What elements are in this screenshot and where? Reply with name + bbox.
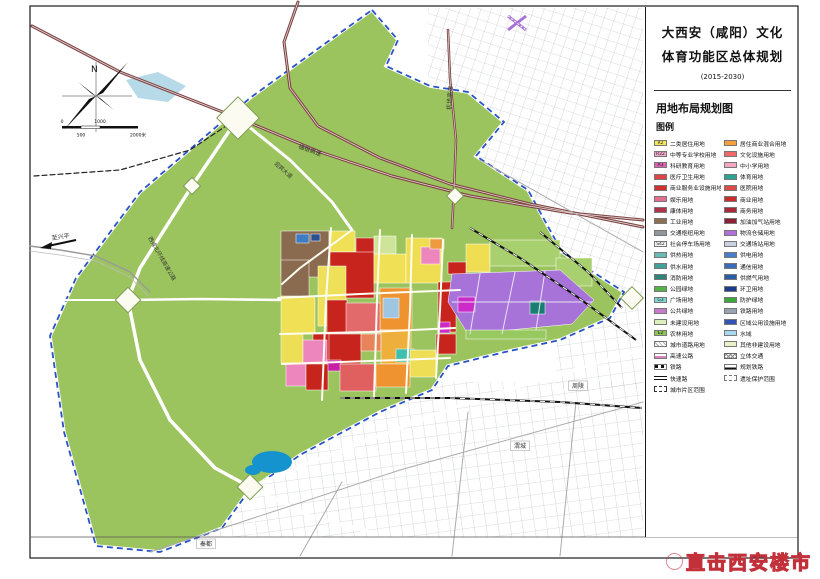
legend-label: 二类居住用地 [670, 139, 705, 148]
legend-label: 立体交通 [740, 351, 763, 360]
legend-label: 环卫用地 [740, 284, 763, 293]
legend-column-right: 居住商业混合用地文化设施用地中小学用地体育用地医院用地商业用地商务用地加油加气站… [724, 138, 791, 395]
legend-label: 供电用地 [740, 250, 763, 259]
legend-row: 文化设施用地 [724, 149, 791, 160]
legend-label: 高速公路 [670, 351, 693, 360]
legend-row: E2农林用地 [654, 328, 721, 339]
legend-row: G3广场用地 [654, 294, 721, 305]
legend-row: 中小学用地 [724, 160, 791, 171]
legend-swatch [654, 364, 667, 370]
legend-row: 快速路 [654, 372, 721, 383]
legend-label: 供水用地 [670, 262, 693, 271]
legend-swatch [654, 319, 667, 325]
legend-label: 商业服务业设施用地 [670, 183, 721, 192]
legend-row: 未建设用地 [654, 317, 721, 328]
legend-row: 加油加气站用地 [724, 216, 791, 227]
legend-row: R2二类居住用地 [654, 138, 721, 149]
legend-label: 供燃气用地 [740, 273, 769, 282]
plan-title-line1: 大西安（咸阳）文化 [654, 21, 791, 45]
legend-row: 工业用地 [654, 216, 721, 227]
direction-arrow-icon [40, 240, 76, 249]
legend-swatch [654, 174, 667, 180]
legend-label: 交通场站用地 [740, 239, 775, 248]
legend-row: 城市片区范围 [654, 384, 721, 395]
legend-swatch [724, 297, 737, 303]
legend-swatch [724, 319, 737, 325]
legend-row: S42社会停车场用地 [654, 238, 721, 249]
legend-swatch [654, 263, 667, 269]
scale-tick-1000: 1000 [94, 119, 106, 125]
legend-swatch [724, 140, 737, 146]
legend-swatch [724, 364, 737, 370]
legend-row: 供燃气用地 [724, 272, 791, 283]
legend-label: 消防用地 [670, 273, 693, 282]
legend-label: 城市片区范围 [670, 385, 705, 394]
legend-label: 铁路用地 [740, 306, 763, 315]
legend-row: 通信用地 [724, 261, 791, 272]
legend-column-left: R2二类居住用地R22中等专业学校用地A3科研教育用地医疗卫生用地商业服务业设施… [654, 138, 721, 395]
legend-swatch: R22 [654, 151, 667, 157]
legend-row: 娱乐用地 [654, 193, 721, 204]
map-sheet-name: 用地布局规划图 [656, 100, 791, 116]
svg-text:秦都: 秦都 [200, 540, 212, 548]
legend-label: 康体用地 [670, 206, 693, 215]
watermark: 直击西安楼市 [666, 548, 812, 575]
legend-label: 农林用地 [670, 329, 693, 338]
legend-row: 城市道路用地 [654, 339, 721, 350]
legend-row: 消防用地 [654, 272, 721, 283]
legend-swatch [724, 252, 737, 258]
legend-row: 环卫用地 [724, 283, 791, 294]
legend-label: 商务用地 [740, 206, 763, 215]
plan-period: (2015-2030) [654, 73, 791, 91]
legend-label: 未建设用地 [670, 318, 699, 327]
legend: R2二类居住用地R22中等专业学校用地A3科研教育用地医疗卫生用地商业服务业设施… [654, 138, 791, 395]
legend-swatch [654, 230, 667, 236]
legend-swatch [724, 162, 737, 168]
legend-swatch [724, 230, 737, 236]
legend-row: 遗址保护范围 [724, 372, 791, 383]
legend-swatch [724, 341, 737, 347]
legend-title: 图例 [656, 120, 791, 133]
legend-swatch [724, 207, 737, 213]
legend-label: 工业用地 [670, 217, 693, 226]
legend-swatch: G3 [654, 297, 667, 303]
legend-swatch: S42 [654, 241, 667, 247]
legend-swatch [724, 330, 737, 336]
legend-swatch: A3 [654, 162, 667, 168]
legend-label: 交通枢纽用地 [670, 228, 705, 237]
legend-row: 供热用地 [654, 249, 721, 260]
legend-row: 医院用地 [724, 182, 791, 193]
legend-label: 医疗卫生用地 [670, 172, 705, 181]
legend-swatch [654, 274, 667, 280]
legend-swatch [654, 386, 667, 392]
legend-row: 立体交通 [724, 350, 791, 361]
legend-label: 城市道路用地 [670, 340, 705, 349]
legend-label: 区域公用设施用地 [740, 318, 786, 327]
watermark-logo-icon [666, 553, 683, 570]
legend-row: 体育用地 [724, 171, 791, 182]
legend-row: 商务用地 [724, 205, 791, 216]
legend-row: 康体用地 [654, 205, 721, 216]
legend-swatch [654, 185, 667, 191]
legend-row: 防护绿地 [724, 294, 791, 305]
scale-tick-500: 500 [77, 133, 86, 139]
legend-row: 交通枢纽用地 [654, 227, 721, 238]
legend-row: 铁路 [654, 361, 721, 372]
legend-swatch [724, 263, 737, 269]
legend-swatch [654, 341, 667, 347]
legend-row: 居住商业混合用地 [724, 138, 791, 149]
legend-swatch [724, 286, 737, 292]
legend-swatch [724, 241, 737, 247]
legend-label: 物流仓储用地 [740, 228, 775, 237]
legend-label: 铁路 [670, 362, 682, 371]
legend-swatch [654, 218, 667, 224]
legend-swatch [654, 196, 667, 202]
svg-text:渭城: 渭城 [514, 442, 526, 450]
legend-swatch [724, 218, 737, 224]
legend-swatch [654, 286, 667, 292]
plan-title: 大西安（咸阳）文化 体育功能区总体规划 [654, 21, 791, 69]
legend-label: 快速路 [670, 374, 687, 383]
legend-row: 公园绿地 [654, 283, 721, 294]
legend-row: 交通场站用地 [724, 238, 791, 249]
legend-label: 医院用地 [740, 183, 763, 192]
scale-tick-0: 0 [61, 119, 64, 125]
legend-row: 医疗卫生用地 [654, 171, 721, 182]
legend-label: 遗址保护范围 [740, 374, 775, 383]
legend-label: 规划铁路 [740, 362, 763, 371]
legend-row: 商业服务业设施用地 [654, 182, 721, 193]
legend-label: 社会停车场用地 [670, 239, 711, 248]
legend-label: 娱乐用地 [670, 195, 693, 204]
legend-swatch [724, 174, 737, 180]
legend-label: 广场用地 [670, 295, 693, 304]
legend-label: 居住商业混合用地 [740, 139, 786, 148]
legend-swatch [654, 308, 667, 314]
legend-label: 公共绿地 [670, 306, 693, 315]
svg-text:至兴平: 至兴平 [51, 232, 70, 242]
legend-label: 其他非建设用地 [740, 340, 781, 349]
legend-label: 防护绿地 [740, 295, 763, 304]
watermark-text: 直击西安楼市 [686, 548, 812, 575]
legend-row: 铁路用地 [724, 305, 791, 316]
legend-swatch [654, 252, 667, 258]
legend-label: 文化设施用地 [740, 150, 775, 159]
scale-tick-2000: 2000米 [130, 132, 146, 139]
plan-title-line2: 体育功能区总体规划 [654, 45, 791, 69]
legend-swatch [724, 308, 737, 314]
legend-row: 公共绿地 [654, 305, 721, 316]
legend-row: 区域公用设施用地 [724, 317, 791, 328]
legend-row: 规划铁路 [724, 361, 791, 372]
compass-north-label: N [91, 65, 98, 75]
legend-swatch [654, 376, 667, 381]
legend-label: 公园绿地 [670, 284, 693, 293]
legend-swatch [724, 375, 737, 381]
legend-row: 高速公路 [654, 350, 721, 361]
legend-row: 供水用地 [654, 261, 721, 272]
legend-swatch [724, 185, 737, 191]
svg-text:机场高速: 机场高速 [445, 86, 455, 111]
legend-swatch [654, 353, 667, 359]
legend-row: 物流仓储用地 [724, 227, 791, 238]
legend-label: 科研教育用地 [670, 161, 705, 170]
legend-row: R22中等专业学校用地 [654, 149, 721, 160]
legend-label: 商业用地 [740, 195, 763, 204]
legend-swatch [724, 274, 737, 280]
scale-bar: 0 500 1000 2000米 [61, 119, 147, 139]
legend-swatch [724, 196, 737, 202]
legend-swatch: R2 [654, 140, 667, 146]
legend-swatch [724, 353, 737, 359]
legend-label: 中小学用地 [740, 161, 769, 170]
info-panel: 大西安（咸阳）文化 体育功能区总体规划 (2015-2030) 用地布局规划图 … [645, 7, 797, 537]
legend-label: 体育用地 [740, 172, 763, 181]
legend-row: 水域 [724, 328, 791, 339]
legend-label: 加油加气站用地 [740, 217, 781, 226]
legend-swatch: E2 [654, 330, 667, 336]
legend-row: A3科研教育用地 [654, 160, 721, 171]
svg-text:周陵: 周陵 [572, 382, 584, 390]
legend-label: 中等专业学校用地 [670, 150, 716, 159]
legend-swatch [654, 207, 667, 213]
legend-row: 其他非建设用地 [724, 339, 791, 350]
legend-label: 供热用地 [670, 250, 693, 259]
legend-row: 供电用地 [724, 249, 791, 260]
planning-map-page: 机场高速福银高速迎宾大道西咸北环线高速公路至兴平周陵渭城秦都 N 0 500 1… [0, 0, 820, 579]
legend-swatch [724, 151, 737, 157]
legend-label: 通信用地 [740, 262, 763, 271]
legend-row: 商业用地 [724, 193, 791, 204]
legend-label: 水域 [740, 329, 752, 338]
